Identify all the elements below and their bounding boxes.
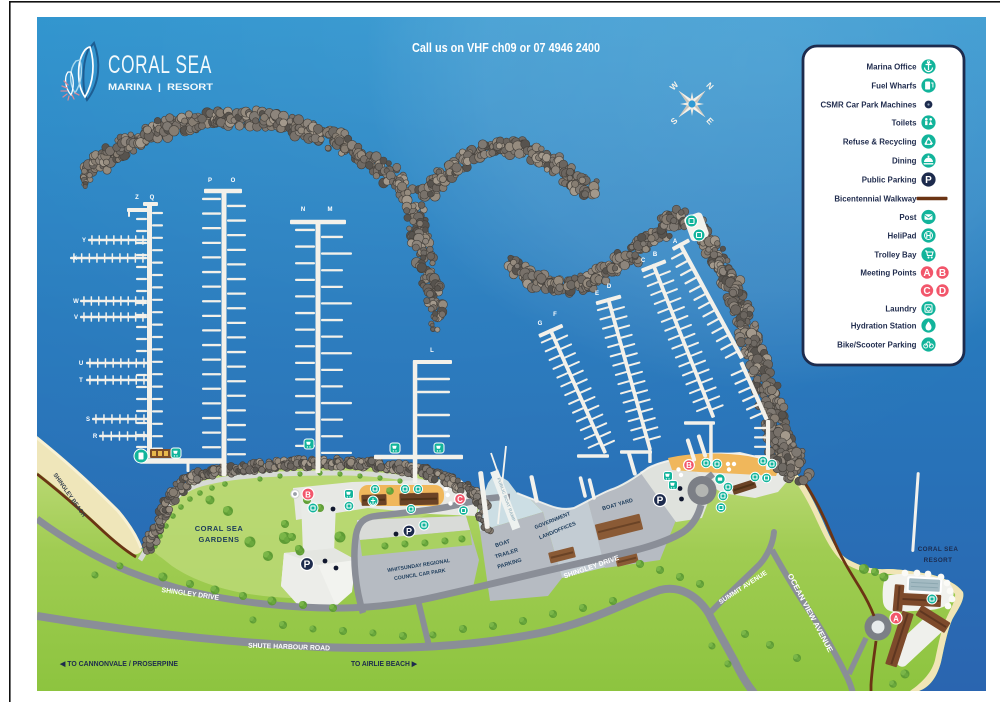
svg-text:L: L — [430, 348, 434, 354]
svg-text:Marina Office: Marina Office — [867, 62, 918, 71]
svg-text:P: P — [208, 178, 212, 184]
svg-text:P: P — [406, 526, 412, 536]
svg-text:Refuse & Recycling: Refuse & Recycling — [843, 137, 917, 146]
svg-text:A: A — [893, 614, 899, 623]
svg-text:HeliPad: HeliPad — [888, 231, 917, 240]
svg-text:D: D — [939, 286, 946, 297]
svg-text:Laundry: Laundry — [885, 304, 917, 313]
svg-text:X: X — [73, 256, 77, 262]
svg-text:B: B — [305, 490, 311, 499]
svg-text:Y: Y — [82, 238, 86, 244]
svg-text:P: P — [657, 496, 664, 507]
svg-text:B: B — [939, 268, 946, 279]
svg-text:S: S — [86, 417, 90, 423]
svg-text:U: U — [79, 361, 83, 367]
svg-text:V: V — [74, 315, 78, 321]
svg-text:CORAL SEA: CORAL SEA — [108, 51, 212, 79]
svg-text:TO AIRLIE BEACH ▶: TO AIRLIE BEACH ▶ — [351, 661, 418, 668]
svg-text:CORAL SEA: CORAL SEA — [918, 546, 959, 553]
svg-text:CORAL SEA: CORAL SEA — [195, 524, 244, 533]
svg-text:Meeting Points: Meeting Points — [860, 268, 917, 277]
svg-text:C: C — [923, 286, 930, 297]
svg-text:Public Parking: Public Parking — [862, 175, 917, 184]
svg-text:O: O — [231, 178, 236, 184]
svg-text:B: B — [686, 461, 692, 470]
svg-text:CSMR Car Park Machines: CSMR Car Park Machines — [820, 100, 917, 109]
svg-text:Toilets: Toilets — [892, 118, 917, 127]
svg-text:Fuel Wharfs: Fuel Wharfs — [871, 81, 917, 90]
svg-text:Dining: Dining — [892, 156, 917, 165]
svg-text:RESORT: RESORT — [924, 557, 953, 564]
svg-text:◀ TO CANNONVALE / PROSERPINE: ◀ TO CANNONVALE / PROSERPINE — [59, 661, 178, 668]
svg-text:B: B — [653, 252, 658, 258]
svg-text:M: M — [328, 207, 333, 213]
svg-text:R: R — [93, 434, 98, 440]
svg-text:G: G — [538, 321, 543, 327]
svg-text:F: F — [553, 312, 557, 318]
svg-text:MARINA | RESORT: MARINA | RESORT — [108, 82, 213, 93]
svg-text:T: T — [79, 378, 83, 384]
svg-text:Bike/Scooter Parking: Bike/Scooter Parking — [837, 340, 917, 349]
svg-text:A: A — [673, 239, 678, 245]
svg-text:N: N — [301, 207, 305, 213]
svg-text:Call us on VHF ch09 or 07 4946: Call us on VHF ch09 or 07 4946 2400 — [412, 41, 600, 55]
svg-text:GARDENS: GARDENS — [198, 535, 239, 544]
svg-text:Hydration Station: Hydration Station — [851, 321, 917, 330]
svg-text:P: P — [925, 175, 932, 186]
svg-text:Post: Post — [899, 213, 916, 222]
svg-text:W: W — [73, 299, 79, 305]
svg-text:Bicentennial Walkway: Bicentennial Walkway — [834, 194, 917, 203]
svg-text:Trolley Bay: Trolley Bay — [874, 250, 917, 259]
svg-text:D: D — [607, 284, 612, 290]
svg-text:P: P — [304, 560, 311, 571]
svg-text:Q: Q — [150, 195, 155, 201]
svg-text:A: A — [923, 268, 930, 279]
svg-text:C: C — [641, 258, 646, 264]
svg-text:E: E — [595, 291, 599, 297]
svg-text:C: C — [457, 495, 463, 504]
svg-text:Z: Z — [135, 195, 139, 201]
